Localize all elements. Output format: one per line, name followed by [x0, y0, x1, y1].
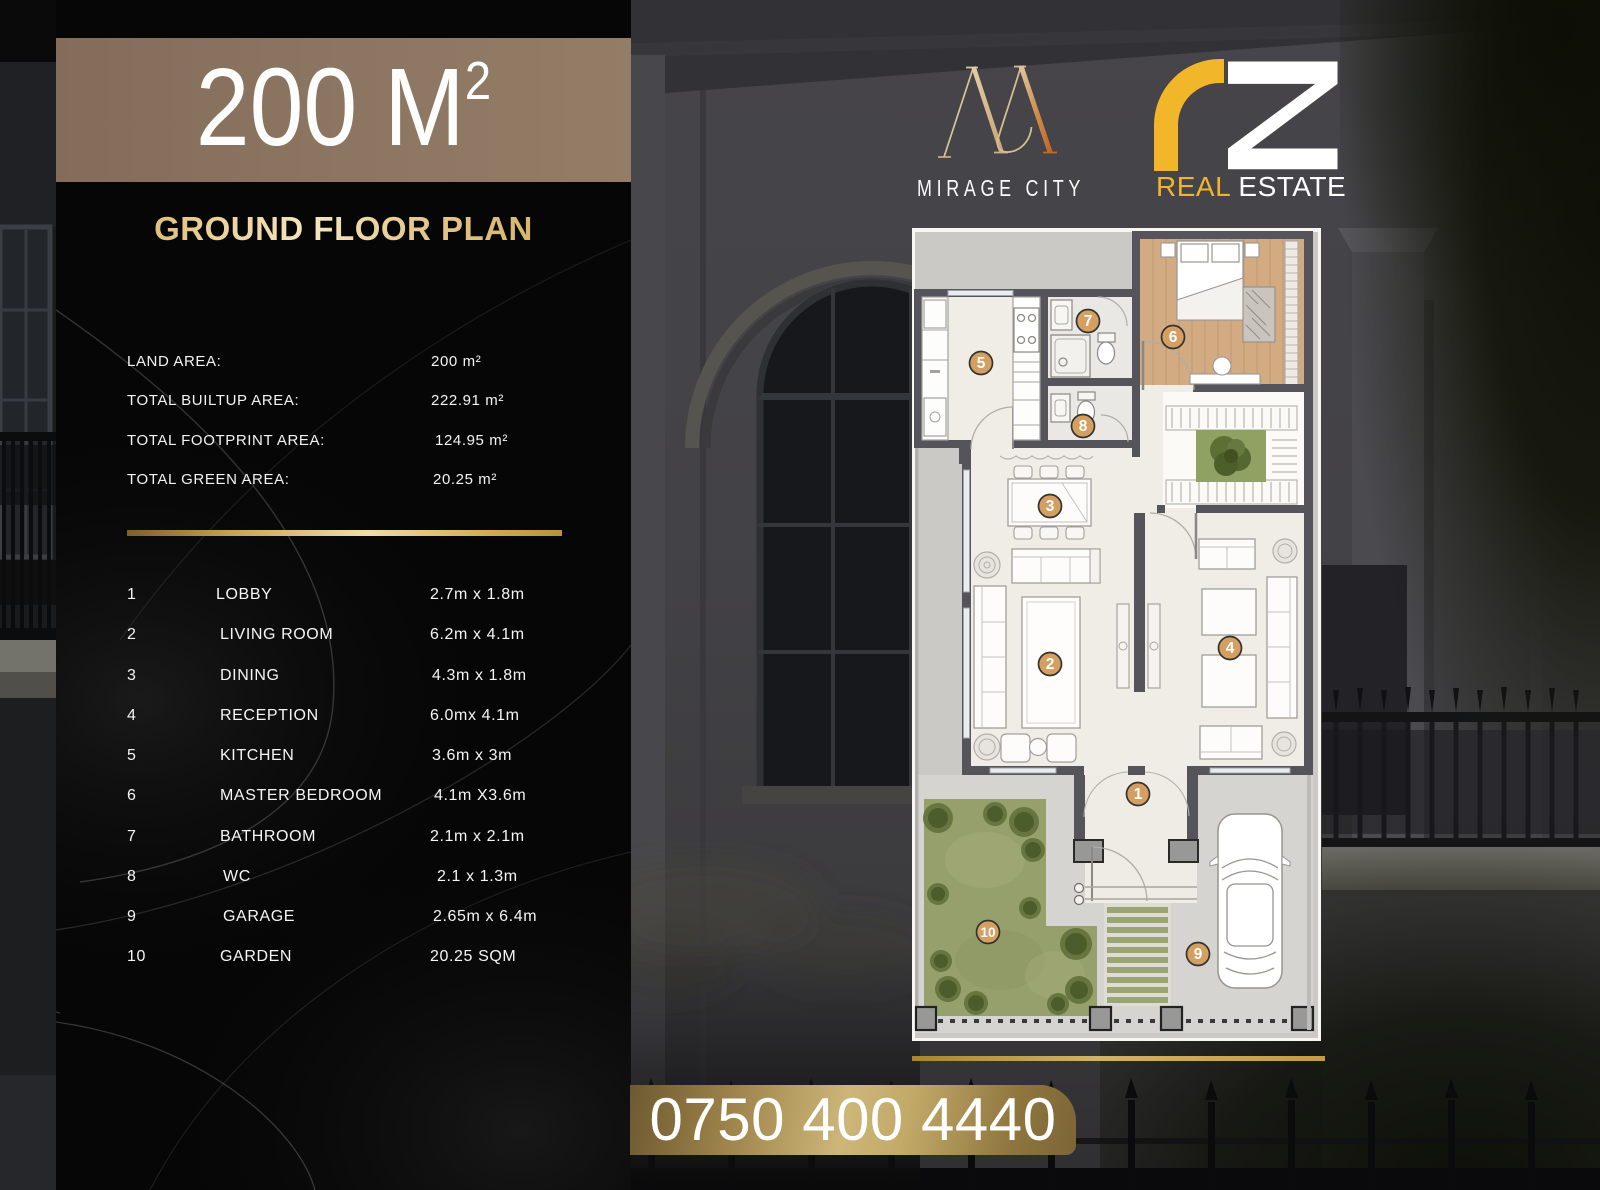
svg-text:3: 3: [1046, 498, 1055, 515]
svg-text:7: 7: [1084, 313, 1093, 330]
svg-text:5: 5: [977, 355, 986, 372]
svg-text:6: 6: [1169, 329, 1178, 346]
svg-text:9: 9: [1194, 946, 1203, 963]
svg-text:8: 8: [1079, 418, 1088, 435]
svg-text:10: 10: [980, 925, 995, 940]
svg-text:1: 1: [1134, 786, 1143, 803]
svg-text:2: 2: [1046, 656, 1055, 673]
svg-text:4: 4: [1226, 640, 1235, 657]
